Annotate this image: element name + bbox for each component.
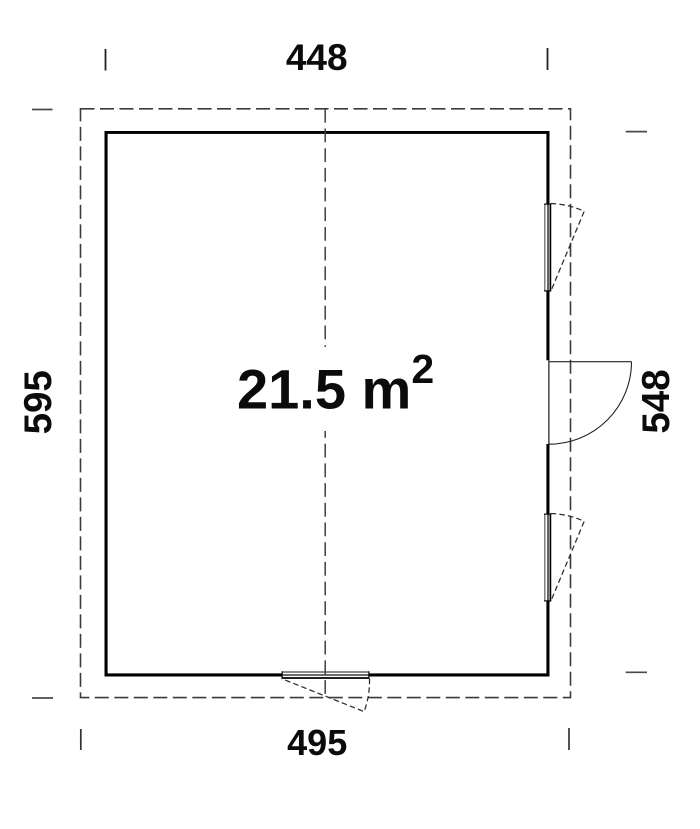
svg-text:548: 548 [635, 369, 678, 433]
svg-text:448: 448 [286, 37, 348, 78]
svg-text:495: 495 [287, 722, 347, 763]
svg-text:595: 595 [17, 370, 60, 434]
svg-text:21.5 m2: 21.5 m2 [237, 346, 434, 421]
